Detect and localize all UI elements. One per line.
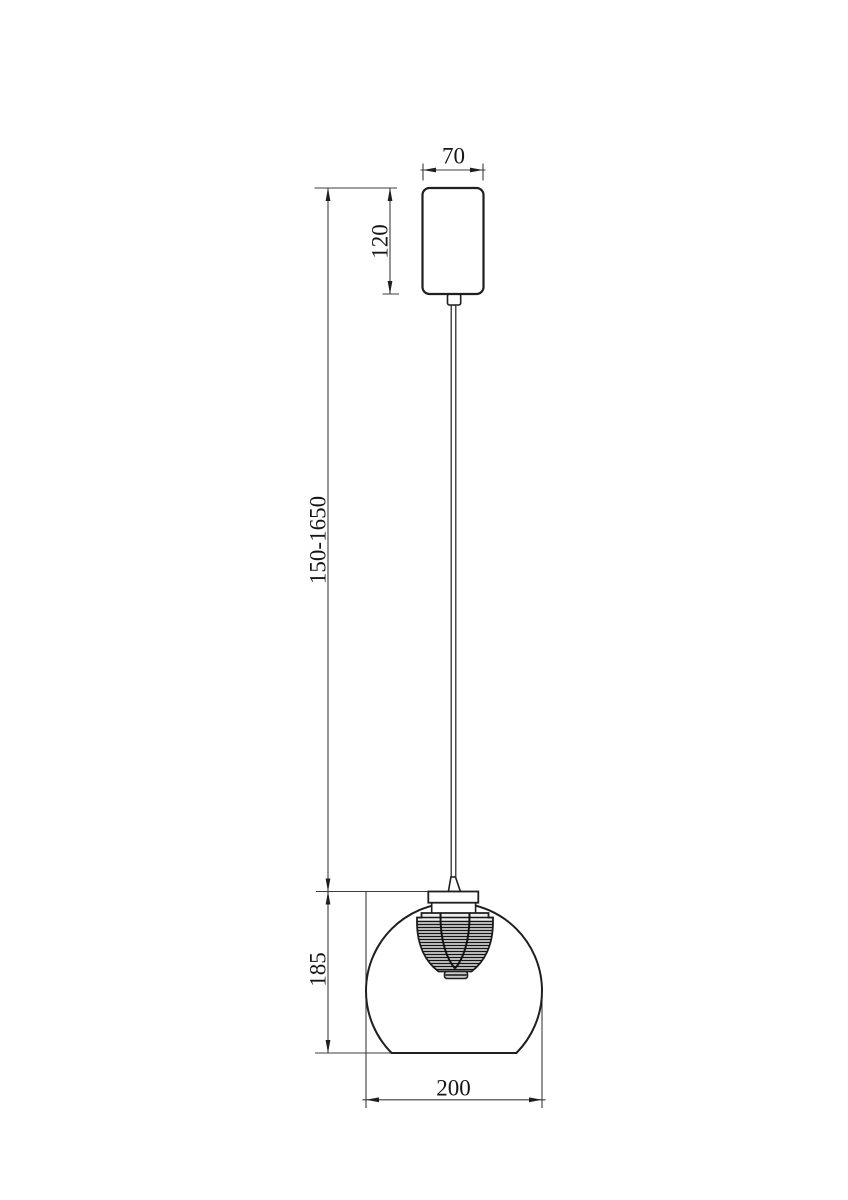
pendant-lamp-dimension-drawing: 70 120 150-1650 185 [0, 0, 848, 1200]
dim-label-shade-width: 200 [436, 1076, 471, 1101]
dim-label-canopy-width: 70 [442, 144, 465, 169]
arrowhead-down-icon [388, 281, 393, 294]
arrowhead-left-icon [366, 1097, 379, 1102]
drawing-canvas: 70 120 150-1650 185 [0, 0, 848, 1200]
arrowhead-down-icon [326, 879, 331, 892]
dim-canopy-width: 70 [421, 144, 486, 181]
arrowhead-up-icon [388, 188, 393, 201]
arrowhead-down-icon [326, 1040, 331, 1053]
ceiling-canopy [423, 188, 484, 294]
arrowhead-right-icon [470, 168, 483, 173]
suspension-cable [451, 305, 456, 877]
strain-relief-cone [448, 877, 460, 892]
dim-label-shade-height: 185 [306, 952, 331, 987]
dim-label-canopy-height: 120 [368, 224, 393, 259]
arrowhead-right-icon [529, 1097, 542, 1102]
dim-label-suspension-range: 150-1650 [306, 496, 331, 584]
diffuser-basket [410, 913, 500, 979]
pendant-lamp [366, 188, 542, 1053]
cable-gland [448, 294, 461, 305]
arrowhead-up-icon [326, 892, 331, 905]
diffuser-bottom-cap [445, 972, 468, 979]
dim-canopy-height: 120 [315, 188, 400, 294]
arrowhead-up-icon [326, 188, 331, 201]
socket-collar [428, 892, 478, 903]
dim-suspension-range: 150-1650 [306, 188, 331, 892]
arrowhead-left-icon [423, 168, 436, 173]
